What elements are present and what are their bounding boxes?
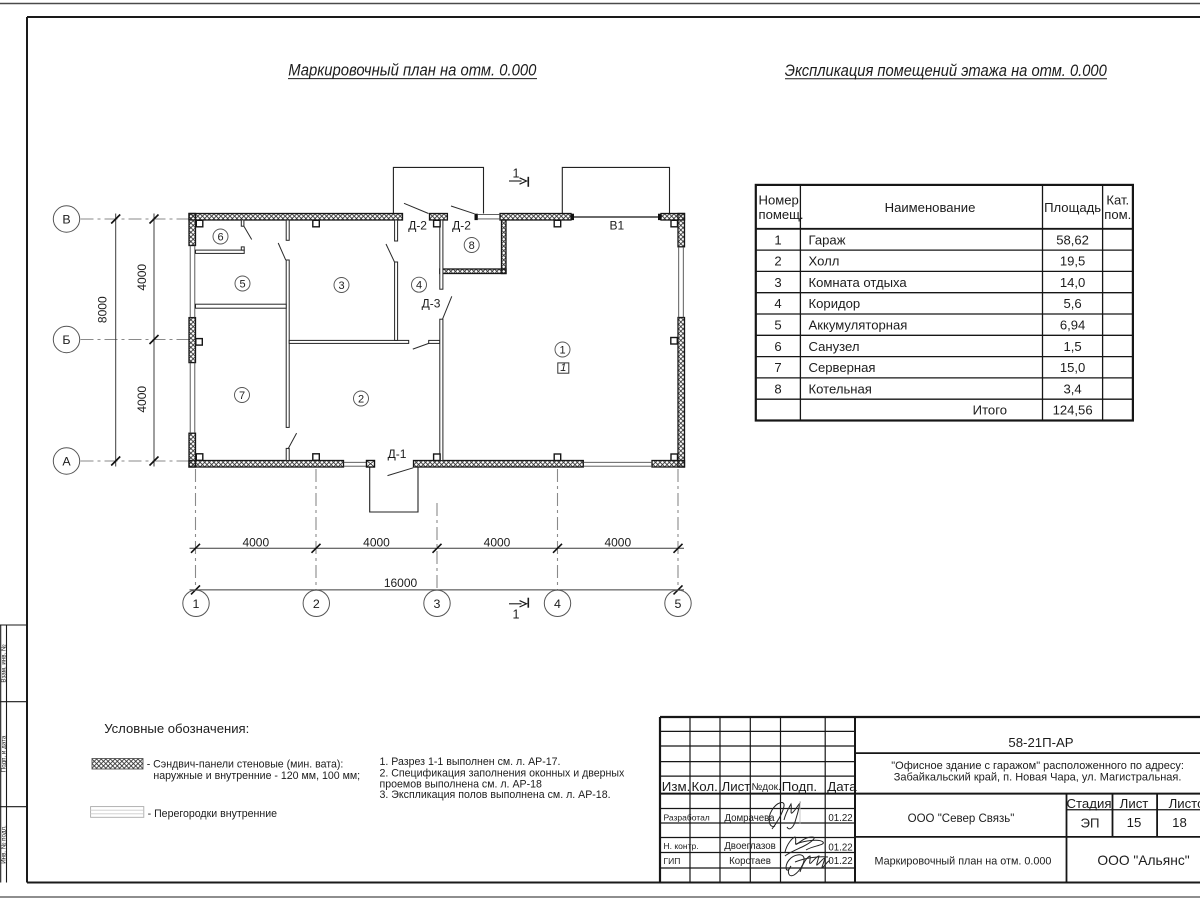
svg-text:Б: Б (62, 333, 70, 347)
svg-text:3,4: 3,4 (1063, 381, 1081, 396)
svg-text:1: 1 (193, 597, 200, 611)
svg-text:7: 7 (239, 390, 245, 402)
svg-text:15: 15 (1127, 815, 1142, 830)
svg-text:пом.: пом. (1104, 207, 1131, 222)
svg-text:Коротаев: Коротаев (729, 856, 771, 867)
svg-text:3: 3 (338, 280, 344, 292)
svg-text:Маркировочный план на отм. 0.0: Маркировочный план на отм. 0.000 (875, 856, 1052, 868)
svg-text:Н. контр.: Н. контр. (664, 841, 699, 851)
svg-text:помещ.: помещ. (759, 207, 804, 222)
svg-text:1,5: 1,5 (1063, 339, 1081, 354)
svg-text:19,5: 19,5 (1060, 254, 1085, 269)
svg-text:5: 5 (239, 279, 245, 291)
svg-text:В: В (62, 213, 70, 227)
svg-text:Д-2: Д-2 (408, 219, 427, 233)
svg-text:ООО "Север Связь": ООО "Север Связь" (908, 813, 1015, 825)
svg-text:1. Разрез 1-1 выполнен см. л.: 1. Разрез 1-1 выполнен см. л. АР-17. (380, 756, 561, 768)
svg-text:01.22: 01.22 (828, 856, 852, 867)
svg-text:Инв. № подл.: Инв. № подл. (1, 825, 8, 864)
svg-text:Дата: Дата (827, 779, 857, 794)
svg-text:4: 4 (416, 280, 422, 292)
svg-text:Аккумуляторная: Аккумуляторная (809, 318, 908, 333)
svg-text:Санузел: Санузел (809, 339, 860, 354)
svg-text:4: 4 (774, 296, 781, 311)
svg-text:6: 6 (217, 232, 223, 244)
svg-text:1: 1 (560, 362, 566, 374)
svg-text:Номер: Номер (759, 193, 799, 208)
svg-text:- Сэндвич-панели стеновые (мин: - Сэндвич-панели стеновые (мин. вата): (147, 758, 344, 770)
svg-text:Гараж: Гараж (809, 232, 846, 247)
svg-text:Наименование: Наименование (885, 200, 976, 215)
svg-text:58,62: 58,62 (1056, 232, 1089, 247)
svg-text:Д-3: Д-3 (422, 296, 441, 310)
svg-text:5,6: 5,6 (1063, 296, 1081, 311)
svg-text:Комната отдыха: Комната отдыха (809, 275, 908, 290)
svg-text:01.22: 01.22 (828, 843, 852, 854)
svg-text:01.22: 01.22 (828, 813, 852, 824)
svg-text:Листов: Листов (1169, 796, 1200, 811)
svg-text:Условные обозначения:: Условные обозначения: (104, 721, 249, 736)
svg-text:7: 7 (774, 360, 781, 375)
svg-text:3: 3 (774, 275, 781, 290)
svg-text:наружные и внутренние - 120 мм: наружные и внутренние - 120 мм, 100 мм; (153, 770, 360, 782)
svg-text:Взам. инв. №: Взам. инв. № (1, 644, 8, 683)
svg-text:"Офисное здание с гаражом" рас: "Офисное здание с гаражом" расположенног… (891, 760, 1184, 772)
svg-text:2: 2 (774, 254, 781, 269)
svg-text:8: 8 (469, 240, 475, 252)
svg-text:Лист: Лист (722, 779, 751, 794)
svg-text:4000: 4000 (604, 535, 631, 549)
svg-text:Подп.: Подп. (782, 779, 817, 794)
svg-text:№док.: №док. (752, 782, 781, 793)
svg-text:124,56: 124,56 (1053, 403, 1093, 418)
svg-text:Подп. и дата: Подп. и дата (1, 735, 8, 772)
svg-text:Разработал: Разработал (664, 813, 710, 823)
svg-text:Итого: Итого (973, 403, 1007, 418)
svg-text:14,0: 14,0 (1060, 275, 1085, 290)
svg-text:ГИП: ГИП (664, 856, 681, 866)
svg-text:В1: В1 (609, 219, 624, 233)
svg-text:Котельная: Котельная (809, 381, 872, 396)
svg-text:Домрачева: Домрачева (724, 813, 775, 824)
svg-text:18: 18 (1172, 815, 1187, 830)
svg-text:3: 3 (434, 597, 441, 611)
svg-text:- Перегородки внутренние: - Перегородки внутренние (148, 808, 278, 820)
svg-text:4000: 4000 (135, 386, 149, 413)
svg-text:2: 2 (358, 394, 364, 406)
svg-text:1: 1 (513, 608, 520, 622)
svg-text:8000: 8000 (95, 296, 109, 323)
svg-text:Двоеглазов: Двоеглазов (724, 841, 776, 852)
svg-text:58-21П-АР: 58-21П-АР (1008, 735, 1073, 750)
svg-text:Кат.: Кат. (1106, 193, 1129, 208)
svg-text:16000: 16000 (384, 576, 418, 590)
svg-text:Забайкальский край, п. Новая Ч: Забайкальский край, п. Новая Чара, ул. М… (894, 772, 1182, 784)
svg-text:ЭП: ЭП (1081, 816, 1100, 831)
svg-text:4000: 4000 (242, 535, 269, 549)
svg-text:А: А (62, 455, 71, 469)
svg-text:5: 5 (675, 597, 682, 611)
svg-text:6,94: 6,94 (1060, 318, 1085, 333)
svg-text:1: 1 (513, 167, 520, 181)
svg-text:Коридор: Коридор (809, 296, 861, 311)
svg-text:1: 1 (559, 345, 565, 357)
svg-text:Серверная: Серверная (809, 360, 876, 375)
svg-text:ООО "Альянс": ООО "Альянс" (1097, 853, 1189, 868)
svg-text:2: 2 (313, 597, 320, 611)
svg-text:Холл: Холл (809, 254, 840, 269)
svg-text:Д-1: Д-1 (388, 447, 407, 461)
svg-text:Изм.: Изм. (662, 779, 691, 794)
svg-text:8: 8 (774, 381, 781, 396)
svg-text:Д-2: Д-2 (452, 219, 471, 233)
svg-text:4000: 4000 (484, 535, 511, 549)
svg-text:Стадия: Стадия (1067, 796, 1112, 811)
svg-text:15,0: 15,0 (1060, 360, 1085, 375)
svg-text:Маркировочный план на отм. 0.0: Маркировочный план на отм. 0.000 (288, 61, 537, 80)
svg-text:3. Экспликация полов выполнена: 3. Экспликация полов выполнена см. л. АР… (380, 789, 611, 801)
svg-text:Лист: Лист (1120, 796, 1149, 811)
svg-text:4000: 4000 (363, 535, 390, 549)
svg-text:1: 1 (774, 232, 781, 247)
svg-text:5: 5 (774, 318, 781, 333)
svg-text:6: 6 (774, 339, 781, 354)
svg-text:4000: 4000 (135, 264, 149, 291)
svg-text:Кол.: Кол. (692, 779, 718, 794)
svg-text:4: 4 (554, 597, 561, 611)
svg-text:Экспликация помещений этажа на: Экспликация помещений этажа на отм. 0.00… (785, 61, 1108, 80)
svg-text:Площадь: Площадь (1044, 200, 1101, 215)
